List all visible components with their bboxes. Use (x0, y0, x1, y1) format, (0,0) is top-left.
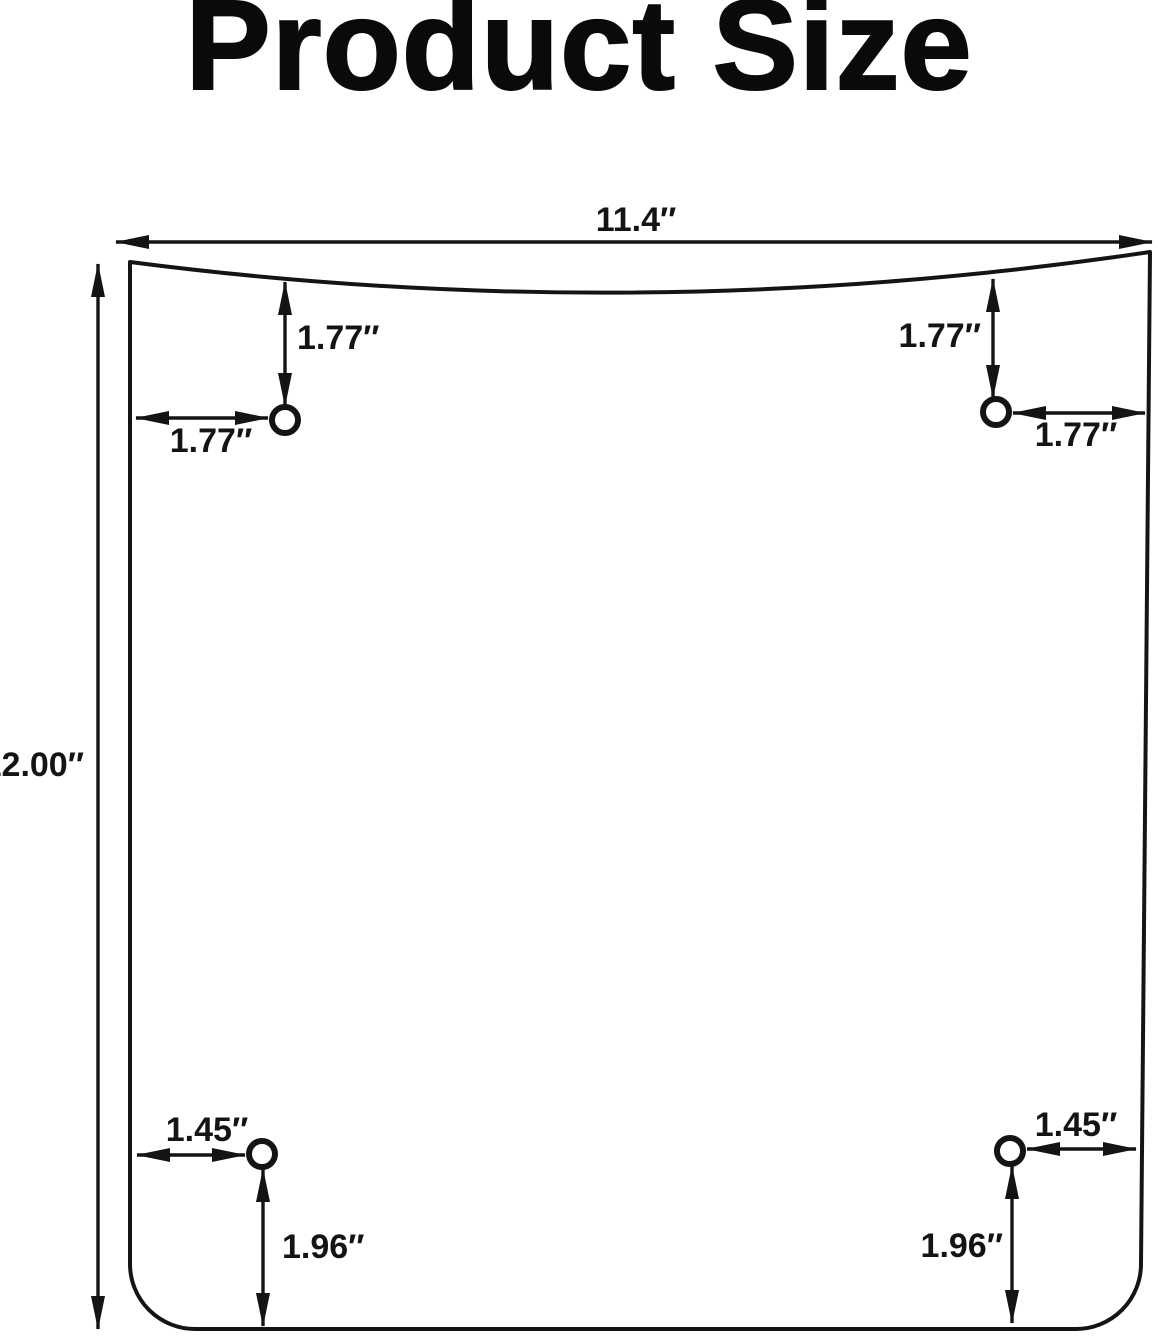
hole-bottom-right (997, 1138, 1023, 1164)
dim-label-top-right-from-top: 1.77″ (899, 317, 981, 355)
dim-label-top-left-from-left: 1.77″ (170, 422, 252, 460)
hole-top-right (983, 399, 1009, 425)
dim-label-bottom-right-from-bottom: 1.96″ (921, 1227, 1003, 1265)
dim-label-overall-width: 11.4″ (596, 201, 677, 239)
hole-top-left (272, 407, 298, 433)
dim-label-bottom-left-from-left: 1.45″ (166, 1111, 248, 1149)
dim-label-bottom-left-from-bottom: 1.96″ (282, 1228, 364, 1266)
product-size-figure: Product Size 11.4″ 12.00″ 1.77″ 1.77″ 1.… (0, 0, 1158, 1337)
dim-label-top-left-from-top: 1.77″ (297, 319, 379, 357)
dimension-diagram: 11.4″ 12.00″ 1.77″ 1.77″ 1.77″ 1.77″ 1.4… (0, 0, 1158, 1337)
hole-bottom-left (249, 1141, 275, 1167)
dim-label-top-right-from-right: 1.77″ (1035, 416, 1117, 454)
dim-label-bottom-right-from-right: 1.45″ (1035, 1106, 1117, 1144)
dim-label-overall-height: 12.00″ (0, 746, 84, 784)
